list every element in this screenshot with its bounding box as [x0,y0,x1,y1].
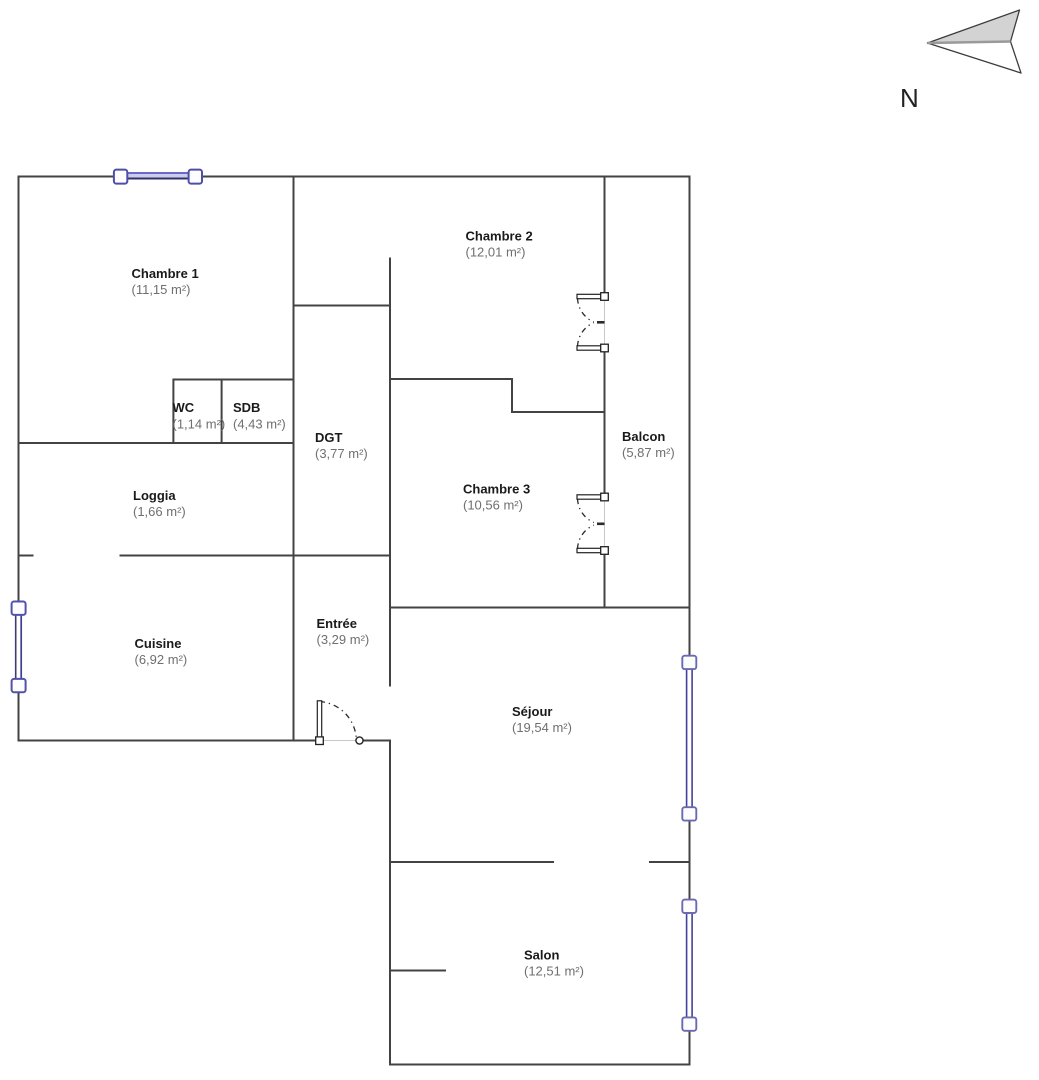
svg-text:Chambre 2: Chambre 2 [466,229,533,244]
svg-text:(19,54 m²): (19,54 m²) [512,720,572,735]
svg-text:(6,92 m²): (6,92 m²) [135,652,188,667]
svg-text:(3,29 m²): (3,29 m²) [317,632,370,647]
svg-text:Séjour: Séjour [512,704,552,719]
svg-text:(12,51 m²): (12,51 m²) [524,964,584,979]
svg-text:Chambre 3: Chambre 3 [463,482,530,497]
svg-text:DGT: DGT [315,430,343,445]
svg-text:(1,14 m²): (1,14 m²) [173,417,226,432]
svg-text:WC: WC [173,400,195,415]
svg-text:Entrée: Entrée [317,616,357,631]
svg-text:Loggia: Loggia [133,488,176,503]
svg-text:Chambre 1: Chambre 1 [132,266,199,281]
svg-text:(3,77 m²): (3,77 m²) [315,446,368,461]
svg-text:Salon: Salon [524,948,559,963]
svg-text:(11,15 m²): (11,15 m²) [132,282,191,297]
svg-text:N: N [900,83,919,113]
svg-text:(1,66 m²): (1,66 m²) [133,504,186,519]
svg-text:(10,56 m²): (10,56 m²) [463,498,523,513]
svg-text:(4,43 m²): (4,43 m²) [233,417,286,432]
svg-text:Cuisine: Cuisine [135,636,182,651]
svg-text:(5,87 m²): (5,87 m²) [622,445,675,460]
svg-text:SDB: SDB [233,400,260,415]
svg-text:(12,01 m²): (12,01 m²) [466,245,526,260]
svg-text:Balcon: Balcon [622,429,665,444]
